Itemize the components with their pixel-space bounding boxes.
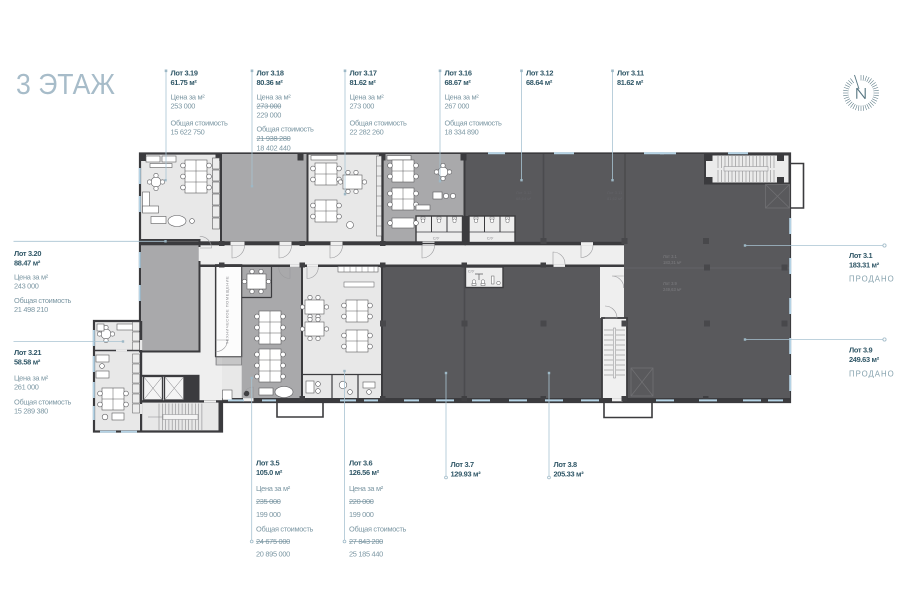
svg-text:58.58 м²: 58.58 м² xyxy=(14,358,41,367)
svg-text:81,62 м²: 81,62 м² xyxy=(607,196,623,201)
svg-text:Лот 3.11: Лот 3.11 xyxy=(617,69,644,78)
svg-text:Лот 3.1: Лот 3.1 xyxy=(849,251,873,260)
svg-text:Лот 3.5: Лот 3.5 xyxy=(256,459,280,468)
svg-text:Общая стоимость: Общая стоимость xyxy=(349,525,407,534)
svg-text:Лот 3.7: Лот 3.7 xyxy=(451,460,475,469)
svg-text:Общая стоимость: Общая стоимость xyxy=(256,525,314,534)
svg-text:Цена за м²: Цена за м² xyxy=(445,93,480,102)
svg-text:88.47 м²: 88.47 м² xyxy=(14,259,41,268)
svg-text:126.56 м²: 126.56 м² xyxy=(349,468,380,477)
svg-text:Лот 3.9: Лот 3.9 xyxy=(849,346,873,355)
svg-text:27 843 200: 27 843 200 xyxy=(349,537,383,546)
svg-text:267 000: 267 000 xyxy=(445,102,470,111)
svg-text:Лот 3.21: Лот 3.21 xyxy=(14,348,41,357)
svg-text:Цена за м²: Цена за м² xyxy=(256,484,291,493)
svg-text:Цена за м²: Цена за м² xyxy=(14,373,49,382)
svg-text:Лот 3.1: Лот 3.1 xyxy=(663,254,678,259)
svg-text:81.62 м²: 81.62 м² xyxy=(617,78,644,87)
svg-text:68.64 м²: 68.64 м² xyxy=(526,78,553,87)
svg-text:249,63 м²: 249,63 м² xyxy=(663,287,682,292)
svg-text:220 000: 220 000 xyxy=(349,497,374,506)
svg-text:ПРОДАНО: ПРОДАНО xyxy=(849,275,895,284)
svg-text:61.75 м²: 61.75 м² xyxy=(171,78,198,87)
svg-text:ПРОДАНО: ПРОДАНО xyxy=(849,370,895,379)
svg-text:Цена за м²: Цена за м² xyxy=(350,93,385,102)
svg-text:20 895 000: 20 895 000 xyxy=(256,550,290,559)
svg-text:ТЕХНИЧЕСКОЕ ПОМЕЩЕНИЕ: ТЕХНИЧЕСКОЕ ПОМЕЩЕНИЕ xyxy=(225,276,230,344)
svg-text:Лот 3.19: Лот 3.19 xyxy=(171,69,198,78)
svg-text:243 000: 243 000 xyxy=(14,282,39,291)
svg-text:21 498 210: 21 498 210 xyxy=(14,305,48,314)
svg-text:Лот 3.17: Лот 3.17 xyxy=(350,69,377,78)
svg-text:Общая стоимость: Общая стоимость xyxy=(171,119,229,128)
svg-text:273 000: 273 000 xyxy=(257,102,282,111)
svg-text:Лот 3.11: Лот 3.11 xyxy=(607,190,623,195)
svg-text:18 334 890: 18 334 890 xyxy=(445,128,479,137)
svg-text:183.31 м²: 183.31 м² xyxy=(849,261,880,270)
svg-text:15 289 380: 15 289 380 xyxy=(14,406,48,415)
svg-text:Цена за м²: Цена за м² xyxy=(257,93,292,102)
svg-text:68,64 м²: 68,64 м² xyxy=(516,196,532,201)
svg-text:Общая стоимость: Общая стоимость xyxy=(445,119,503,128)
svg-text:С/У: С/У xyxy=(433,236,440,241)
svg-text:273 000: 273 000 xyxy=(350,102,375,111)
svg-text:Лот 3.18: Лот 3.18 xyxy=(257,69,284,78)
svg-text:253 000: 253 000 xyxy=(171,102,196,111)
svg-text:81.62 м²: 81.62 м² xyxy=(350,78,377,87)
svg-text:Цена за м²: Цена за м² xyxy=(14,273,49,282)
svg-text:15 622 750: 15 622 750 xyxy=(171,128,205,137)
svg-text:229 000: 229 000 xyxy=(257,111,282,120)
svg-text:18 402 440: 18 402 440 xyxy=(257,144,291,153)
svg-text:Общая стоимость: Общая стоимость xyxy=(257,125,315,134)
svg-text:249.63 м²: 249.63 м² xyxy=(849,355,880,364)
svg-text:205.33 м²: 205.33 м² xyxy=(554,470,585,479)
svg-text:С/У: С/У xyxy=(468,269,475,274)
svg-text:235 000: 235 000 xyxy=(256,497,281,506)
svg-text:3 ЭТАЖ: 3 ЭТАЖ xyxy=(16,69,115,101)
svg-text:Лот 3.12: Лот 3.12 xyxy=(516,190,532,195)
svg-text:183,31 м²: 183,31 м² xyxy=(663,260,682,265)
svg-text:199 000: 199 000 xyxy=(256,510,281,519)
svg-text:261 000: 261 000 xyxy=(14,382,39,391)
svg-text:24 675 000: 24 675 000 xyxy=(256,537,290,546)
svg-text:Общая стоимость: Общая стоимость xyxy=(14,398,72,407)
svg-text:Лот 3.8: Лот 3.8 xyxy=(554,460,578,469)
svg-text:Лот 3.9: Лот 3.9 xyxy=(663,281,678,286)
svg-text:25 185 440: 25 185 440 xyxy=(349,550,383,559)
svg-text:Лот 3.6: Лот 3.6 xyxy=(349,459,373,468)
svg-text:Лот 3.12: Лот 3.12 xyxy=(526,69,553,78)
svg-text:Общая стоимость: Общая стоимость xyxy=(350,119,408,128)
svg-text:105.0 м²: 105.0 м² xyxy=(256,468,283,477)
svg-text:Лот 3.20: Лот 3.20 xyxy=(14,249,41,258)
svg-text:Лот 3.16: Лот 3.16 xyxy=(445,69,472,78)
svg-text:129.93 м²: 129.93 м² xyxy=(451,470,482,479)
svg-text:Общая стоимость: Общая стоимость xyxy=(14,296,72,305)
svg-text:22 282 260: 22 282 260 xyxy=(350,128,384,137)
svg-text:68.67 м²: 68.67 м² xyxy=(445,78,472,87)
svg-text:80.36 м²: 80.36 м² xyxy=(257,78,284,87)
svg-text:Цена за м²: Цена за м² xyxy=(171,93,206,102)
svg-text:21 938 280: 21 938 280 xyxy=(257,134,291,143)
svg-text:Цена за м²: Цена за м² xyxy=(349,484,384,493)
svg-text:199 000: 199 000 xyxy=(349,510,374,519)
svg-text:С/У: С/У xyxy=(487,236,494,241)
